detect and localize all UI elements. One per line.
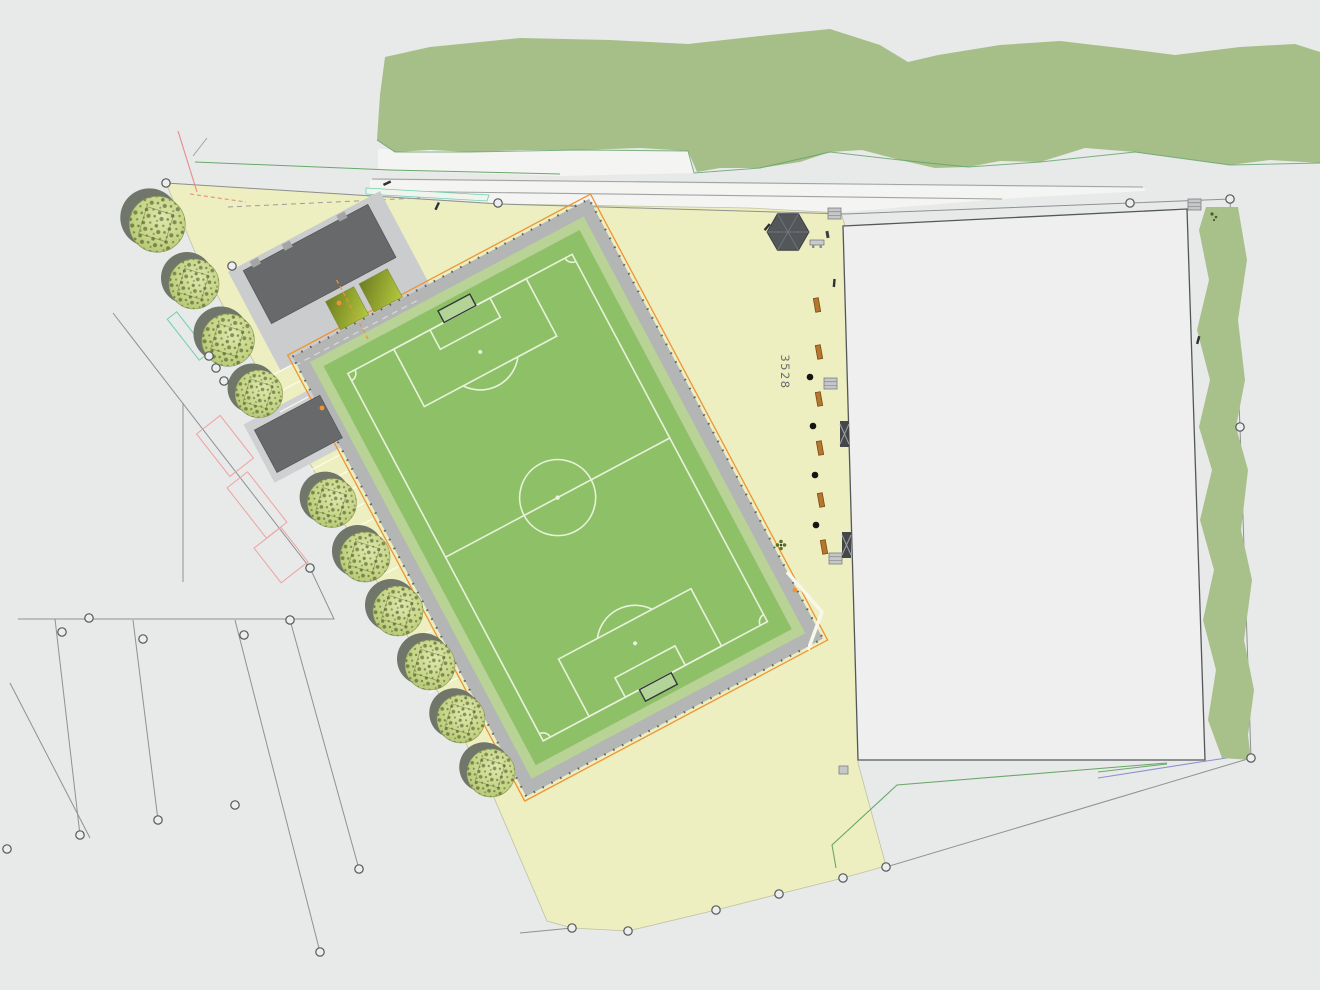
site-plan-canvas: 3528 bbox=[0, 0, 1320, 990]
utility-box-icon bbox=[828, 208, 841, 219]
neighbor-parcel bbox=[843, 209, 1205, 760]
site-plan: 3528 bbox=[0, 0, 1320, 990]
utility-box-icon bbox=[839, 766, 848, 774]
gate-icon bbox=[840, 421, 849, 447]
utility-box-icon bbox=[824, 378, 837, 389]
utility-box-icon bbox=[1188, 199, 1201, 210]
utility-box-icon bbox=[829, 553, 842, 564]
gate-icon bbox=[842, 532, 851, 558]
parcel-number-label: 3528 bbox=[778, 354, 792, 389]
